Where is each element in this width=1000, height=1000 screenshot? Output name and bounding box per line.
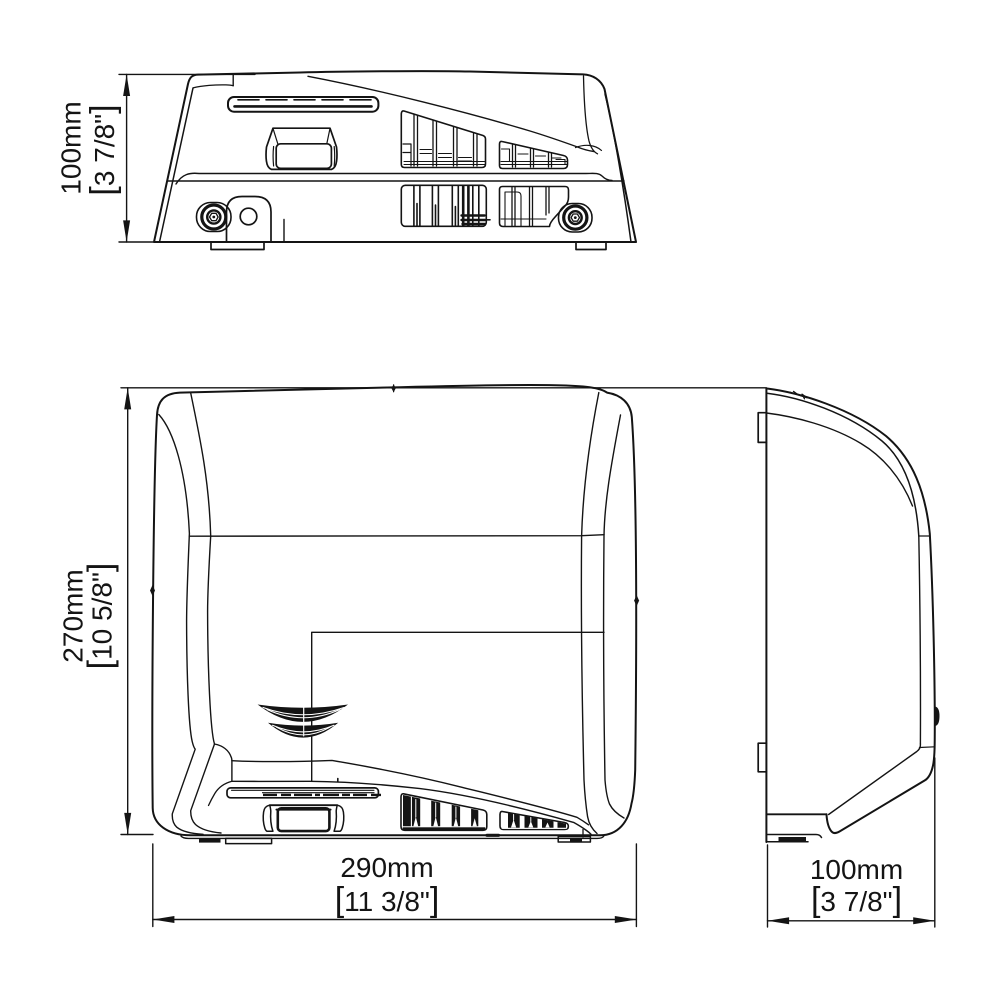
svg-text:[10 5/8"]: [10 5/8"] [82,563,120,670]
svg-text:270mm: 270mm [58,569,89,662]
svg-text:100mm: 100mm [810,854,903,885]
svg-text:[11 3/8"]: [11 3/8"] [335,881,440,919]
svg-text:290mm: 290mm [340,852,433,883]
svg-text:100mm: 100mm [56,101,87,194]
svg-text:[3 7/8"]: [3 7/8"] [811,881,902,919]
svg-text:[3 7/8"]: [3 7/8"] [84,104,122,195]
